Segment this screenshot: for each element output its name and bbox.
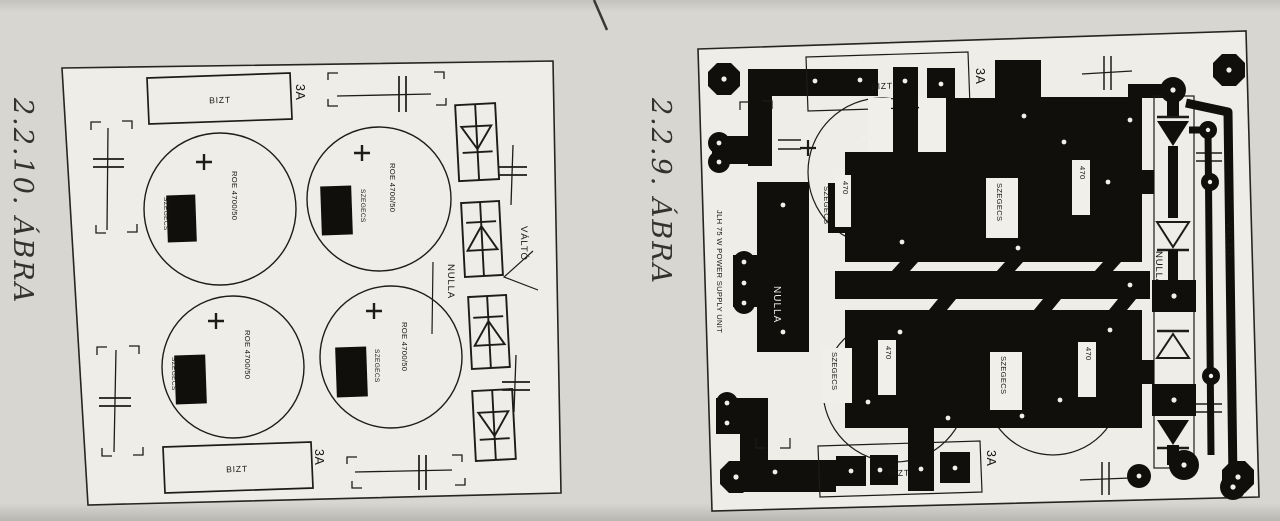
capacitor-value-fragment: 470 [884,346,893,360]
copper-plane-upper: SZEGECS 470 470 [835,98,1142,262]
rivet-label: SZEGECS [359,189,366,223]
rivet-label: SZEGECS [830,352,839,390]
capacitor-value-label: ROE 4700/50 [400,322,409,371]
fuse-rating-label: 3A [293,84,307,100]
rivet-label: SZEGECS [822,186,831,224]
board-title-label: JLH 75 W POWER SUPPLY UNIT [715,210,724,333]
capacitor-value-fragment: 470 [1078,166,1087,180]
fuse-rating-label: 3A [312,449,326,465]
capacitor-value-label: ROE 4700/50 [230,171,239,220]
figure-caption-right: 2.2.9. ÁBRA [645,97,678,285]
neutral-label: NULLA [445,264,456,299]
scanned-page: 2.2.10. ÁBRA BIZT 3A BIZT 3A SZEGECS ROE… [0,0,1280,521]
figure-component-layout: 2.2.10. ÁBRA BIZT 3A BIZT 3A SZEGECS ROE… [7,61,561,505]
fuse-label: BIZT [209,95,231,106]
rivet-label: SZEGECS [170,357,177,391]
rivet-label: SZEGECS [162,197,169,231]
figure-caption-left: 2.2.10. ÁBRA [7,97,40,304]
live-label: VÁLTÓ [518,226,529,261]
rivet-label: SZEGECS [373,349,380,383]
rivet-pad [335,346,368,397]
rivet-label: SZEGECS [999,356,1008,394]
fuse-label: BIZT [226,464,248,475]
capacitor-value-label: ROE 4700/50 [388,163,397,212]
rivet-label: SZEGECS [995,183,1004,221]
capacitor-value-label: ROE 4700/50 [243,330,252,379]
fuse-rating-label: 3A [973,68,987,84]
rivet-pad [320,185,353,235]
page-scan-svg: 2.2.10. ÁBRA BIZT 3A BIZT 3A SZEGECS ROE… [0,0,1280,521]
rivet-pad [174,354,207,404]
fuse-rating-label: 3A [984,450,998,466]
scan-shadow-bottom [0,503,1280,521]
scan-shadow-top [0,0,1280,12]
pcb-outline-left [62,61,561,505]
fuse-label: BIZT [871,81,893,92]
capacitor-value-fragment: 470 [1084,347,1093,361]
live-label: VÁLTÓ [1223,222,1234,257]
capacitor-value-fragment: 470 [841,181,850,195]
neutral-label-knockout: NULLA [771,286,782,323]
rivet-pad [166,194,197,242]
figure-copper-layout: 2.2.9. ÁBRA JLH 75 W POWER SUPPLY UNIT [645,31,1259,511]
copper-plane-lower: SZEGECS 470 SZEGECS 470 [822,310,1142,428]
fuse-label: BIZT [888,468,910,479]
